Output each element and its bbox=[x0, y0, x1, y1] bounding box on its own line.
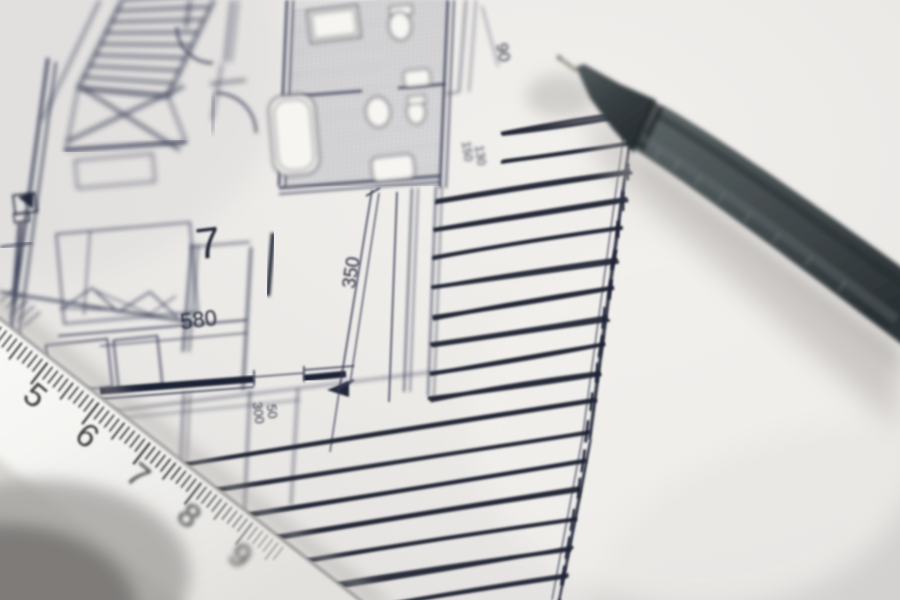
svg-text:50: 50 bbox=[264, 403, 281, 419]
svg-text:130: 130 bbox=[472, 144, 489, 166]
svg-text:90: 90 bbox=[492, 41, 514, 63]
svg-text:580: 580 bbox=[179, 305, 218, 334]
